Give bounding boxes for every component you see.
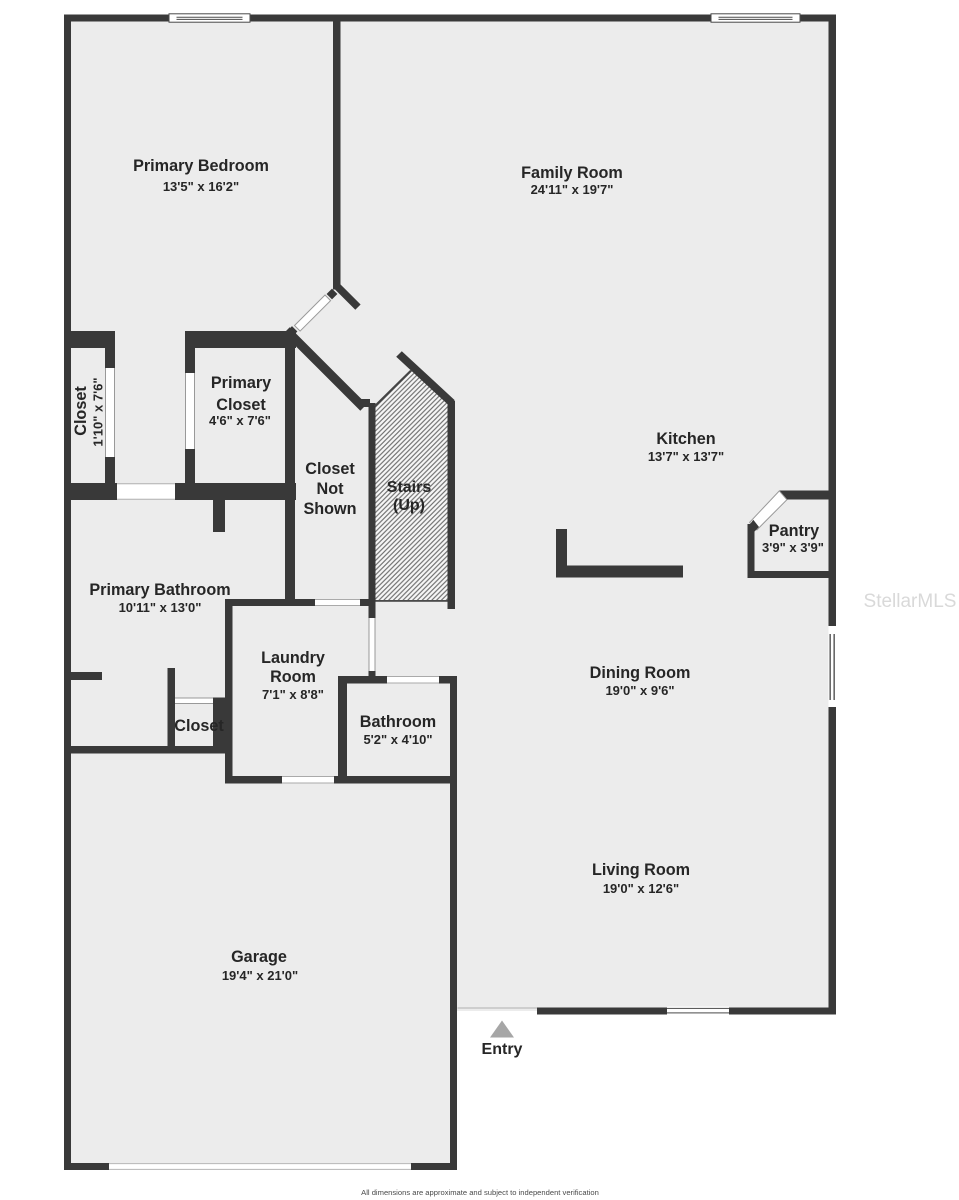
svg-text:10'11" x 13'0": 10'11" x 13'0" [119, 600, 202, 615]
svg-text:Not: Not [317, 480, 345, 498]
svg-text:19'4" x 21'0": 19'4" x 21'0" [222, 968, 298, 983]
svg-text:All dimensions are approximate: All dimensions are approximate and subje… [361, 1188, 599, 1197]
svg-text:Shown: Shown [303, 500, 356, 518]
svg-text:Primary: Primary [211, 374, 271, 392]
svg-text:Garage: Garage [231, 948, 287, 966]
svg-text:24'11" x 19'7": 24'11" x 19'7" [531, 182, 614, 197]
svg-text:7'1" x 8'8": 7'1" x 8'8" [262, 687, 324, 702]
svg-text:Family Room: Family Room [521, 164, 623, 182]
svg-text:Entry: Entry [482, 1041, 523, 1058]
svg-text:3'9" x 3'9": 3'9" x 3'9" [762, 540, 824, 555]
svg-text:StellarMLS: StellarMLS [864, 591, 957, 612]
svg-text:Laundry: Laundry [261, 649, 325, 667]
svg-text:1'10" x 7'6": 1'10" x 7'6" [91, 377, 106, 446]
svg-text:(Up): (Up) [393, 497, 425, 514]
svg-text:4'6" x 7'6": 4'6" x 7'6" [209, 413, 271, 428]
svg-text:Closet: Closet [305, 460, 355, 478]
svg-text:Kitchen: Kitchen [656, 430, 715, 448]
svg-text:13'5" x 16'2": 13'5" x 16'2" [163, 179, 239, 194]
svg-text:19'0" x 9'6": 19'0" x 9'6" [605, 683, 674, 698]
svg-text:Closet: Closet [174, 717, 224, 735]
svg-text:Room: Room [270, 668, 316, 686]
svg-text:Closet: Closet [216, 396, 266, 414]
svg-text:Living Room: Living Room [592, 861, 690, 879]
svg-text:Closet: Closet [72, 386, 90, 436]
svg-text:Bathroom: Bathroom [360, 713, 436, 731]
svg-text:Pantry: Pantry [769, 522, 819, 540]
svg-text:Dining Room: Dining Room [590, 664, 691, 682]
svg-text:13'7" x 13'7": 13'7" x 13'7" [648, 449, 724, 464]
svg-text:19'0" x 12'6": 19'0" x 12'6" [603, 881, 679, 896]
svg-text:Primary Bedroom: Primary Bedroom [133, 157, 269, 175]
svg-text:Stairs: Stairs [387, 479, 432, 496]
svg-text:5'2" x 4'10": 5'2" x 4'10" [363, 732, 432, 747]
svg-text:Primary Bathroom: Primary Bathroom [89, 581, 230, 599]
